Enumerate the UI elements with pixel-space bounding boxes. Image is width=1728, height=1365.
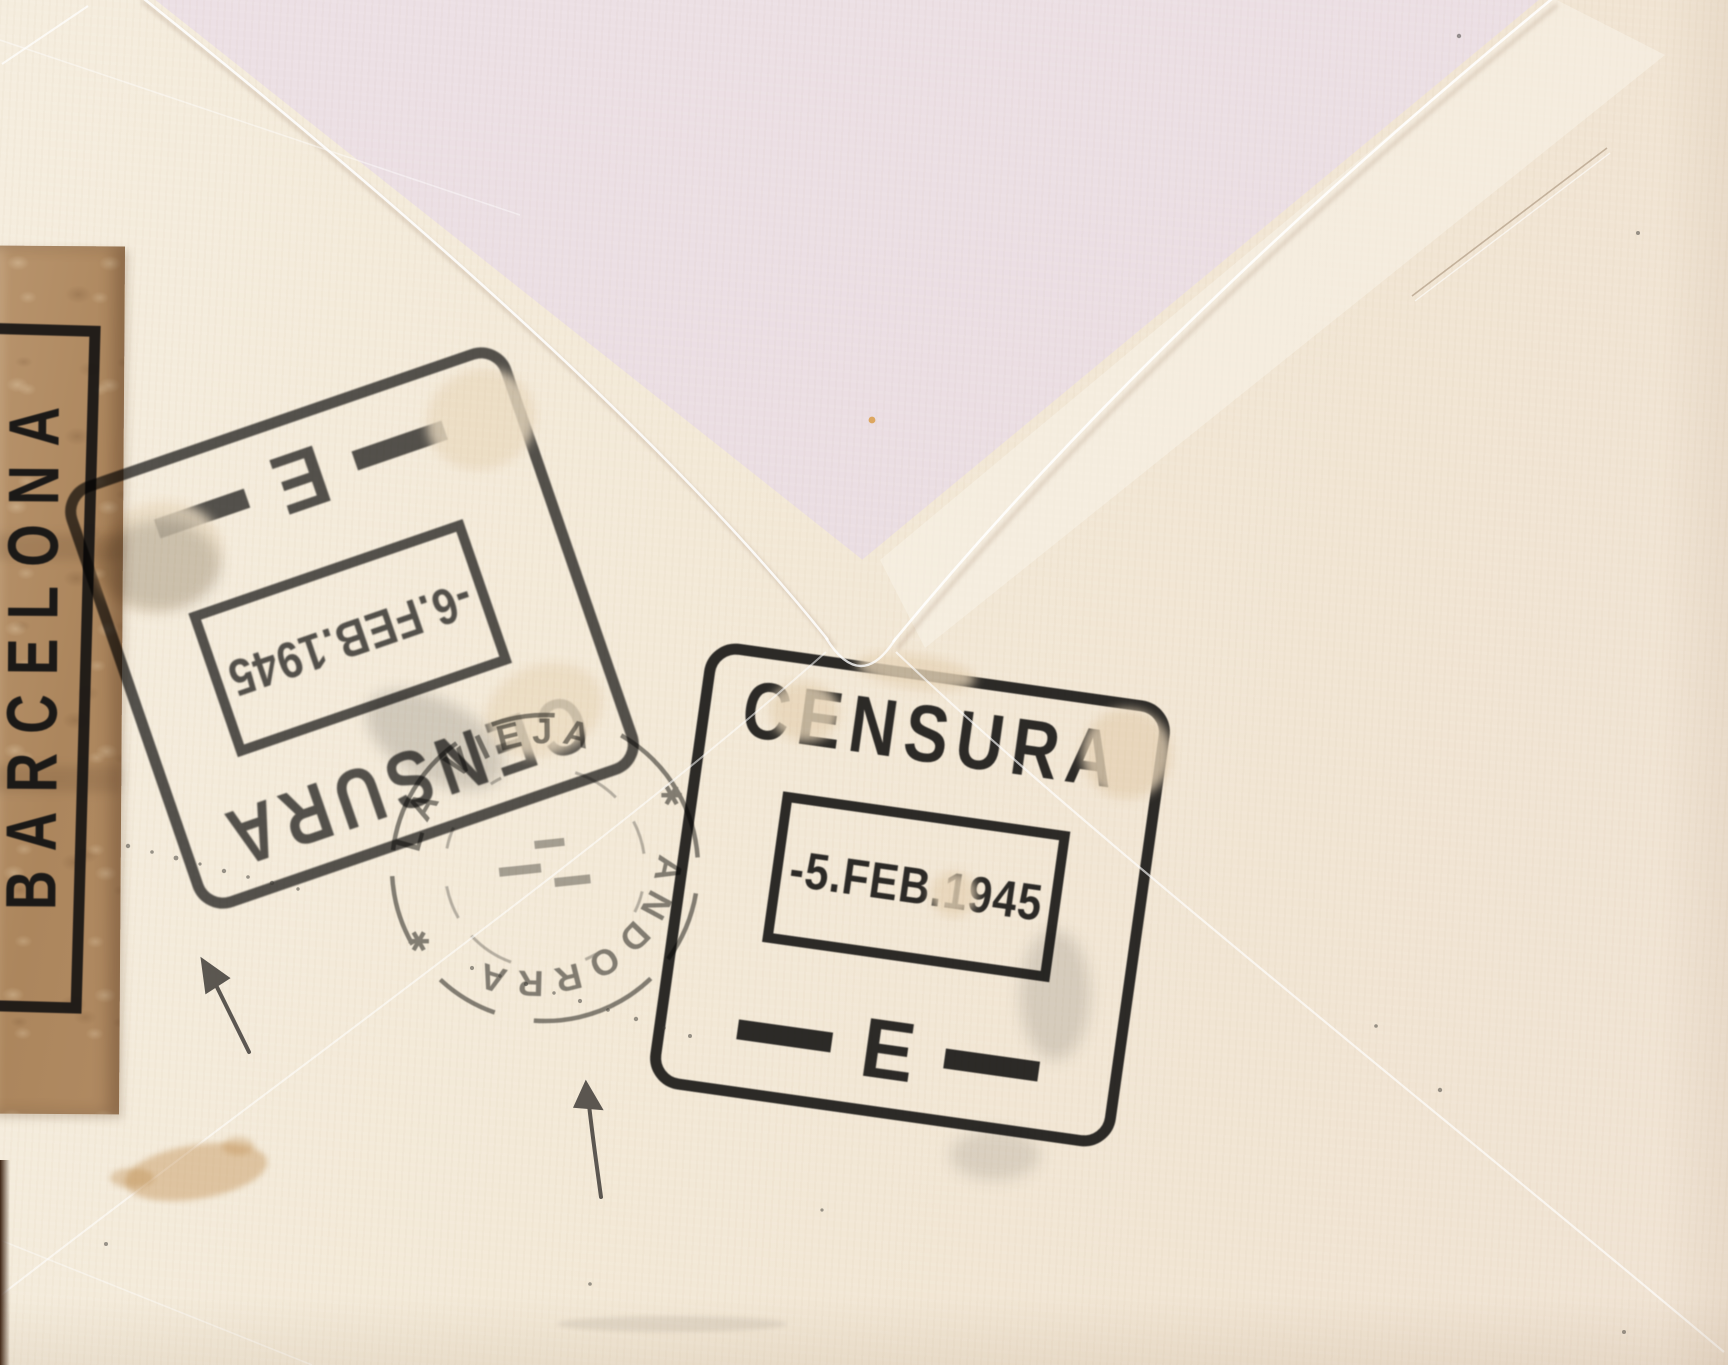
- crease-line: [0, 1240, 312, 1365]
- flap-edge-left: [138, 0, 828, 640]
- crease-shadow: [142, 1, 834, 647]
- annotation-arrow-center: [576, 1084, 601, 1197]
- photo-overlay: [0, 0, 1728, 1365]
- crease-line: [896, 652, 1724, 1352]
- paper-fleck: [869, 417, 876, 424]
- crease-line: [0, 40, 520, 215]
- envelope-photo: BARCELONA ANDORRA LA VIEJA ✱ ✱ CENSU: [0, 0, 1728, 1365]
- photo-dark-edge: [0, 1160, 10, 1365]
- flap-tip: [826, 638, 896, 666]
- flap-edge-band: [880, 0, 1665, 648]
- stain: [110, 1134, 271, 1210]
- crease-line: [0, 652, 826, 1296]
- annotation-arrow-left: [203, 961, 249, 1052]
- pencil-ghost: [557, 1316, 787, 1332]
